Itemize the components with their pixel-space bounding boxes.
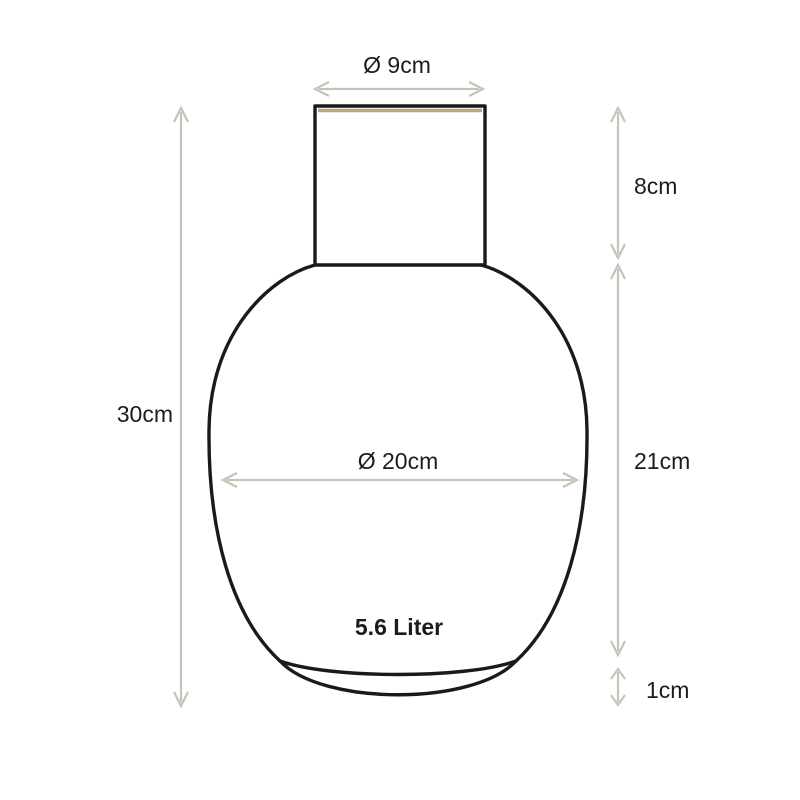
body-diameter-arrow xyxy=(223,473,577,487)
top-diameter-arrow xyxy=(315,82,483,96)
label-total-height: 30cm xyxy=(60,401,173,427)
total-height-arrow xyxy=(174,108,188,706)
vase-dimension-diagram: Ø 9cm 8cm 30cm Ø 20cm 21cm 5.6 Liter 1cm xyxy=(0,0,800,800)
vase-foot-outline xyxy=(280,661,516,695)
vase-neck-outline xyxy=(315,106,485,265)
label-neck-height: 8cm xyxy=(634,173,677,199)
label-body-height: 21cm xyxy=(634,448,690,474)
label-top-diameter: Ø 9cm xyxy=(317,52,477,78)
label-body-diameter: Ø 20cm xyxy=(318,448,478,474)
body-height-arrow xyxy=(611,265,625,655)
label-capacity: 5.6 Liter xyxy=(319,614,479,640)
base-height-arrow xyxy=(611,669,625,705)
label-base-height: 1cm xyxy=(646,677,689,703)
neck-height-arrow xyxy=(611,108,625,258)
